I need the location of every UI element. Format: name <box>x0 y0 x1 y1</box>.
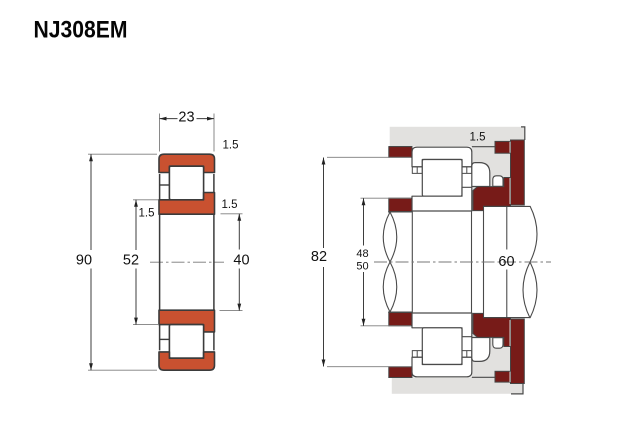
svg-text:40: 40 <box>233 252 249 268</box>
svg-text:NJ308EM: NJ308EM <box>34 17 128 44</box>
svg-text:1.5: 1.5 <box>223 140 239 152</box>
svg-text:1.5: 1.5 <box>222 199 238 211</box>
svg-text:60: 60 <box>498 254 514 270</box>
svg-text:1.5: 1.5 <box>470 132 486 144</box>
svg-text:23: 23 <box>178 109 194 125</box>
svg-text:1.5: 1.5 <box>139 208 155 220</box>
svg-text:82: 82 <box>311 249 327 265</box>
svg-text:90: 90 <box>76 252 92 268</box>
svg-text:52: 52 <box>123 252 139 268</box>
svg-text:50: 50 <box>356 260 368 272</box>
svg-text:48: 48 <box>356 248 368 260</box>
